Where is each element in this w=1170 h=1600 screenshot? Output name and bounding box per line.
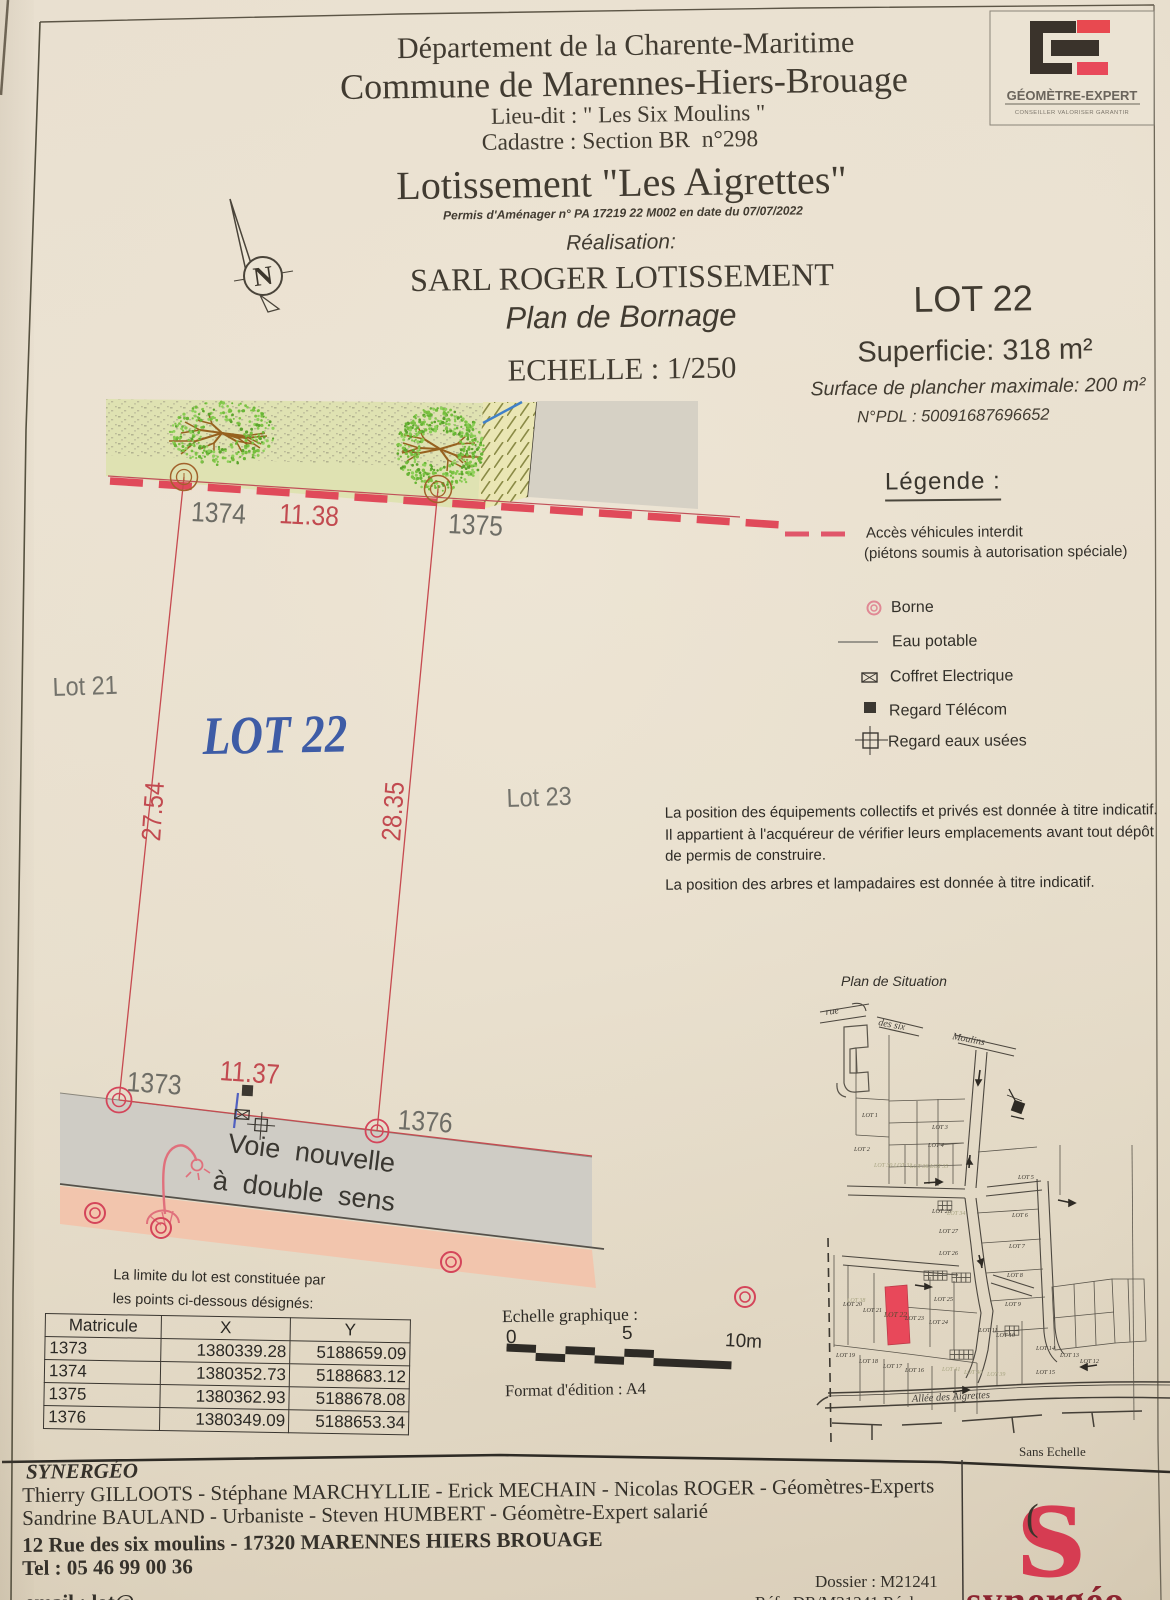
svg-text:LOT 35: LOT 35: [929, 1164, 948, 1170]
svg-text:rue: rue: [825, 1005, 840, 1018]
svg-text:LOT 2: LOT 2: [853, 1146, 870, 1153]
svg-text:des six: des six: [877, 1017, 906, 1033]
svg-text:LOT 10: LOT 10: [995, 1332, 1016, 1339]
svg-text:LOT 14: LOT 14: [1035, 1345, 1055, 1352]
svg-text:LOT 15: LOT 15: [1035, 1369, 1055, 1376]
svg-text:LOT 16: LOT 16: [904, 1367, 925, 1374]
svg-text:LOT 24: LOT 24: [928, 1319, 948, 1326]
svg-text:LOT 38: LOT 38: [846, 1298, 865, 1304]
svg-text:LOT 27: LOT 27: [938, 1228, 959, 1235]
svg-text:LOT 22: LOT 22: [883, 1310, 907, 1319]
svg-text:CONSEILLER VALORISER GARANTI: CONSEILLER VALORISER GARANTIR: [1015, 110, 1129, 116]
svg-text:LOT 6: LOT 6: [1011, 1212, 1029, 1219]
svg-text:LOT 19: LOT 19: [835, 1352, 855, 1359]
svg-text:LOT 21: LOT 21: [862, 1307, 882, 1314]
svg-text:LOT 8: LOT 8: [1006, 1272, 1024, 1279]
svg-text:LOT 40: LOT 40: [963, 1369, 982, 1376]
svg-text:LOT 4: LOT 4: [927, 1142, 944, 1149]
svg-text:LOT 5: LOT 5: [1017, 1174, 1034, 1181]
svg-text:LOT 3: LOT 3: [931, 1124, 948, 1131]
svg-text:LOT 34: LOT 34: [946, 1210, 965, 1217]
svg-text:LOT 41: LOT 41: [941, 1366, 960, 1373]
svg-text:LOT 11: LOT 11: [978, 1327, 998, 1334]
svg-text:LOT 1: LOT 1: [861, 1112, 878, 1119]
svg-text:GÉOMÈTRE-EXPERT: GÉOMÈTRE-EXPERT: [1007, 88, 1138, 103]
svg-text:LOT 17: LOT 17: [882, 1363, 903, 1370]
svg-text:LOT 13: LOT 13: [1059, 1352, 1079, 1359]
svg-text:LOT 39: LOT 39: [986, 1372, 1005, 1378]
svg-text:LOT 25: LOT 25: [933, 1296, 953, 1303]
svg-text:LOT 18: LOT 18: [858, 1358, 879, 1365]
svg-text:LOT 7: LOT 7: [1008, 1243, 1026, 1250]
svg-text:LOT 9: LOT 9: [1004, 1301, 1021, 1308]
svg-text:LOT 30 LOT 31: LOT 30 LOT 31: [873, 1163, 912, 1169]
svg-text:Allée des Aigrettes: Allée des Aigrettes: [911, 1390, 991, 1405]
svg-text:LOT 12: LOT 12: [1079, 1358, 1099, 1365]
svg-text:LOT 26: LOT 26: [938, 1250, 959, 1257]
